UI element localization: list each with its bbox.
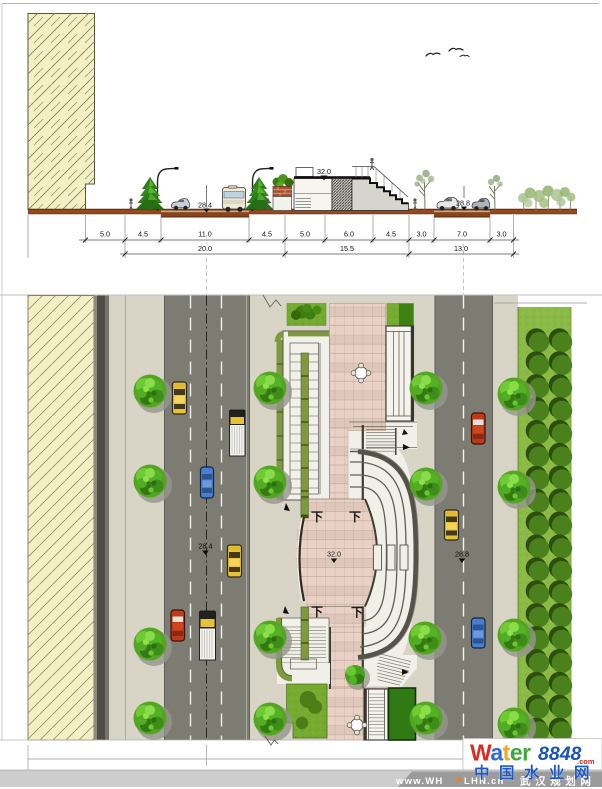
svg-text:3.0: 3.0 — [497, 230, 507, 239]
svg-text:中国水业网: 中国水业网 — [474, 763, 599, 782]
svg-text:32.0: 32.0 — [317, 167, 331, 176]
svg-text:5.0: 5.0 — [100, 230, 110, 239]
svg-text:8848: 8848 — [538, 743, 582, 765]
svg-text:P: P — [456, 776, 463, 787]
svg-text:4.5: 4.5 — [138, 230, 148, 239]
svg-text:6.0: 6.0 — [344, 230, 354, 239]
svg-text:32.0: 32.0 — [327, 550, 341, 559]
svg-text:28.8: 28.8 — [456, 199, 470, 208]
svg-text:下: 下 — [349, 510, 361, 524]
svg-text:4.5: 4.5 — [386, 230, 396, 239]
svg-text:13.0: 13.0 — [454, 244, 468, 253]
svg-text:7.0: 7.0 — [457, 230, 467, 239]
svg-text:28.4: 28.4 — [198, 201, 212, 210]
svg-text:3.0: 3.0 — [417, 230, 427, 239]
svg-text:下: 下 — [311, 605, 323, 619]
svg-text:Water: Water — [470, 740, 531, 766]
svg-text:下: 下 — [351, 606, 363, 620]
svg-text:5.0: 5.0 — [300, 230, 310, 239]
svg-text:4.5: 4.5 — [262, 230, 272, 239]
svg-text:15.5: 15.5 — [340, 244, 354, 253]
svg-text:www.WH: www.WH — [395, 776, 443, 787]
svg-text:11.0: 11.0 — [198, 230, 211, 239]
svg-text:下: 下 — [311, 510, 323, 524]
svg-text:28.4: 28.4 — [199, 542, 213, 551]
svg-text:20.0: 20.0 — [198, 244, 212, 253]
svg-text:28.8: 28.8 — [455, 550, 469, 559]
